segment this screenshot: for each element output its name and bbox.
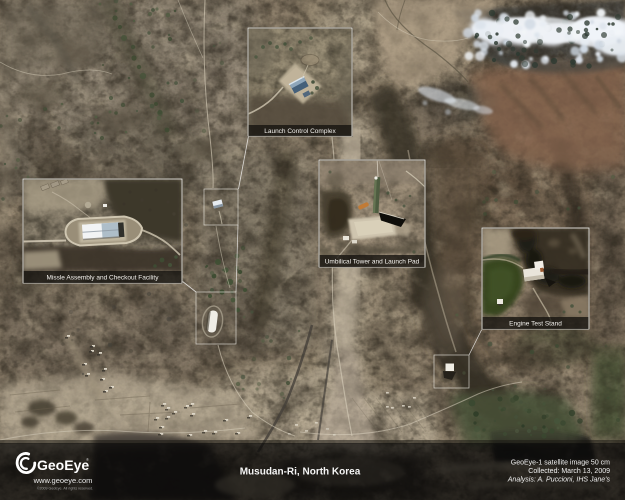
svg-text:Engine Test Stand: Engine Test Stand <box>509 321 562 328</box>
svg-text:Analysis: A. Puccioni, IHS Jan: Analysis: A. Puccioni, IHS Jane's <box>507 477 611 484</box>
svg-text:Umbilical Tower and Launch Pad: Umbilical Tower and Launch Pad <box>325 259 420 266</box>
svg-text:©2009 GeoEye. All rights reser: ©2009 GeoEye. All rights reserved. <box>37 487 93 491</box>
svg-text:Missle Assembly and Checkout F: Missle Assembly and Checkout Facility <box>47 275 160 282</box>
svg-text:Collected: March 13, 2009: Collected: March 13, 2009 <box>528 468 610 475</box>
svg-text:GeoEye-1 satellite image 50 cm: GeoEye-1 satellite image 50 cm <box>511 460 610 467</box>
svg-text:Launch Control Complex: Launch Control Complex <box>264 128 336 135</box>
svg-text:GeoEye: GeoEye <box>37 457 89 473</box>
svg-text:Musudan-Ri, North Korea: Musudan-Ri, North Korea <box>240 467 361 478</box>
svg-text:www.geoeye.com: www.geoeye.com <box>33 476 93 485</box>
svg-text:®: ® <box>86 457 89 462</box>
